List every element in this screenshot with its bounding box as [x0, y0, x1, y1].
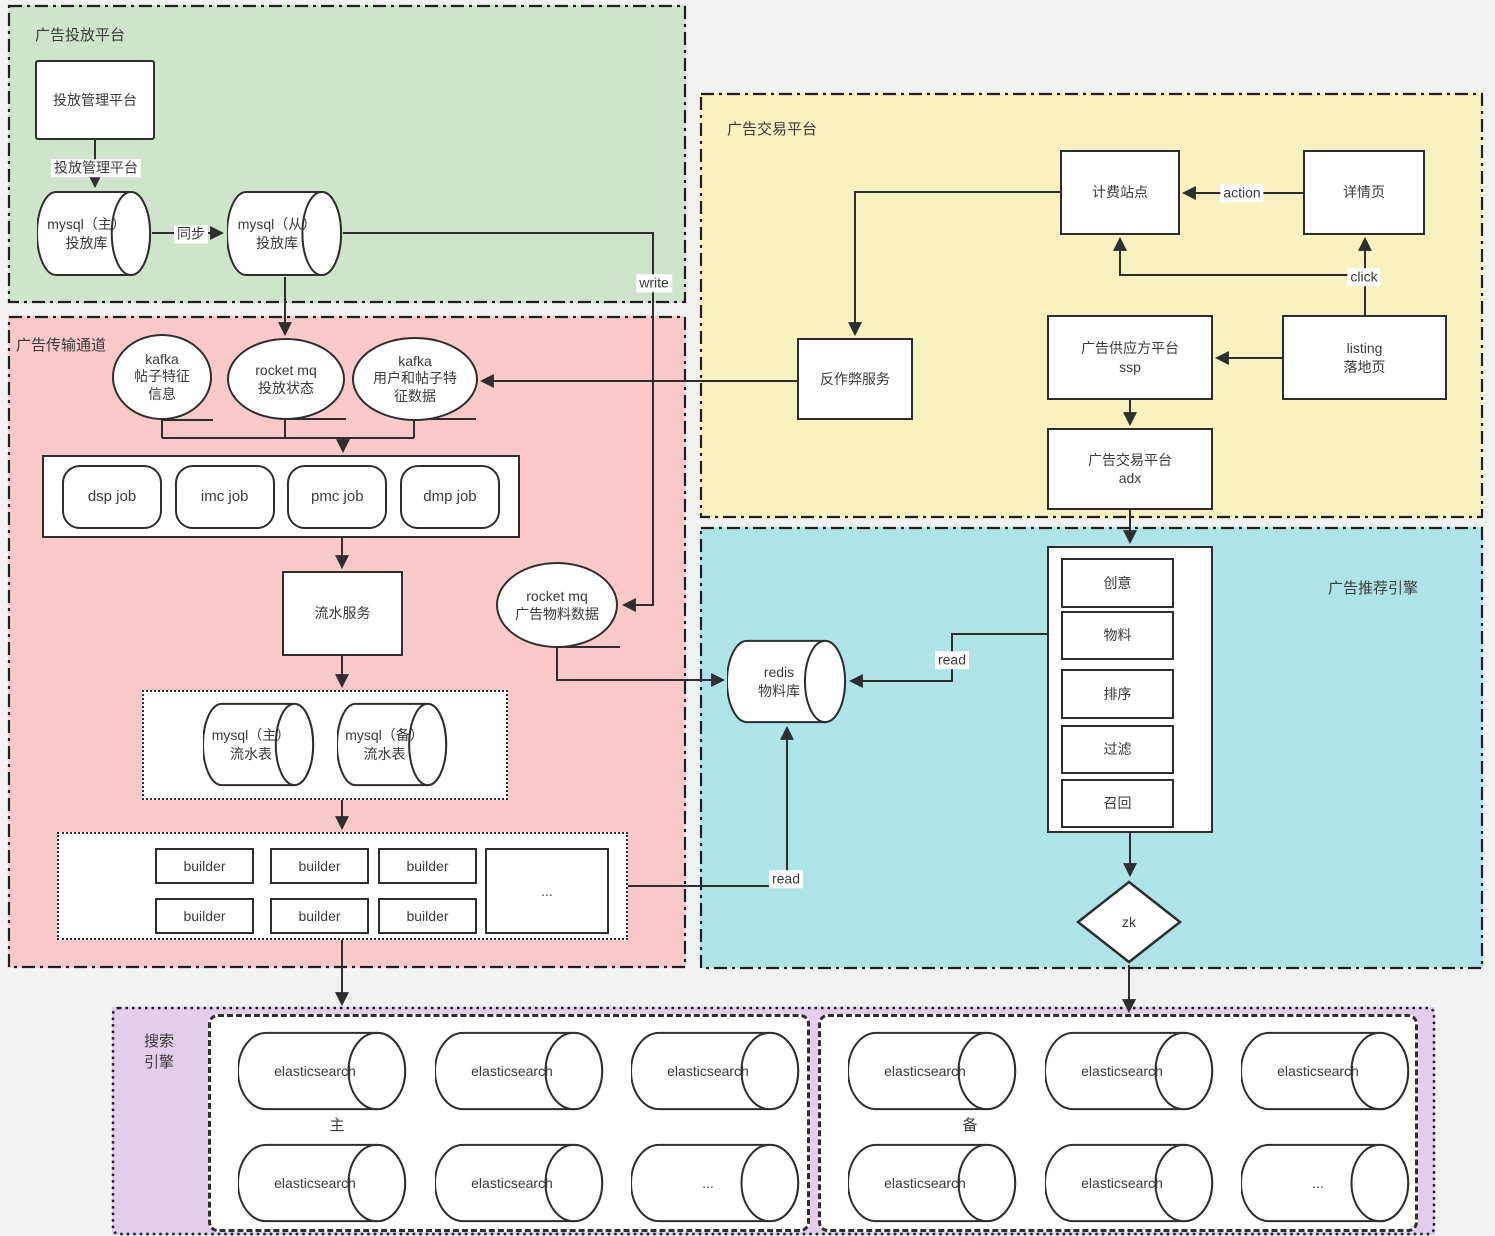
es-cylinder: elasticsearch	[435, 1031, 605, 1111]
job-dmp: dmp job	[400, 465, 500, 529]
builder-grid: builder builder builder builder builder …	[57, 832, 628, 940]
cylinder-mysql-slave-ads: mysql（从） 投放库	[227, 190, 343, 277]
ellipse-rocketmq-status: rocket mq 投放状态	[227, 338, 345, 420]
cylinder-mysql-master-flow: mysql（主） 流水表	[203, 702, 315, 787]
stack-item-label: 过滤	[1104, 740, 1132, 758]
es-more-cylinder: ...	[631, 1143, 801, 1223]
cylinder-redis-material-label: redis 物料库	[758, 663, 816, 699]
edge-label-mgmt: 投放管理平台	[51, 159, 141, 177]
stack-item-creative: 创意	[1061, 558, 1174, 608]
es-cylinder: elasticsearch	[238, 1143, 408, 1223]
stack-item-recall: 召回	[1061, 779, 1174, 828]
cylinder-redis-material: redis 物料库	[727, 639, 847, 724]
es-label: elasticsearch	[667, 1062, 765, 1080]
stack-item-filter: 过滤	[1061, 725, 1174, 774]
region-label-ad-delivery: 广告投放平台	[35, 24, 125, 45]
node-listing-page-label: listing 落地页	[1344, 339, 1386, 375]
builder-more-label: ...	[541, 882, 553, 900]
node-anti-fraud-label: 反作弊服务	[820, 370, 890, 388]
es-cylinder: elasticsearch	[1045, 1143, 1215, 1223]
es-label: elasticsearch	[471, 1062, 569, 1080]
stack-item-label: 召回	[1104, 794, 1132, 812]
ellipse-rocketmq-status-label: rocket mq 投放状态	[255, 361, 316, 397]
node-adx-label: 广告交易平台 adx	[1088, 451, 1172, 487]
region-label-search-engine: 搜索 引擎	[130, 1030, 188, 1072]
cylinder-mysql-master-ads: mysql（主） 投放库	[37, 190, 152, 277]
edge-label-write: write	[636, 274, 672, 292]
node-anti-fraud: 反作弊服务	[797, 338, 913, 420]
edge-label-sync: 同步	[174, 225, 208, 243]
cylinder-mysql-backup-flow-label: mysql（备） 流水表	[345, 726, 440, 762]
ellipse-kafka-user-post-feature-label: kafka 用户和帖子特 征数据	[373, 353, 457, 406]
es-label: elasticsearch	[1081, 1062, 1179, 1080]
node-listing-page: listing 落地页	[1282, 315, 1447, 400]
builder-label: builder	[183, 907, 225, 925]
region-label-ad-exchange: 广告交易平台	[727, 118, 817, 139]
es-label: elasticsearch	[884, 1062, 982, 1080]
builder-box: builder	[270, 848, 369, 884]
stack-item-rank: 排序	[1061, 669, 1174, 719]
builder-label: builder	[183, 857, 225, 875]
builder-label: builder	[406, 907, 448, 925]
builder-box: builder	[378, 898, 477, 934]
node-flow-service-label: 流水服务	[315, 604, 371, 622]
ellipse-rocketmq-ad-material-label: rocket mq 广告物料数据	[515, 587, 599, 623]
node-mgmt-platform: 投放管理平台	[35, 60, 155, 140]
node-billing-site: 计费站点	[1060, 150, 1180, 235]
builder-box: builder	[378, 848, 477, 884]
edge-label-read-stack: read	[935, 651, 969, 669]
stack-item-label: 排序	[1104, 685, 1132, 703]
region-label-ad-recommend: 广告推荐引擎	[1328, 577, 1418, 598]
es-cluster-main: elasticsearch elasticsearch elasticsearc…	[208, 1014, 810, 1232]
es-more-label: ...	[702, 1174, 730, 1192]
ellipse-kafka-post-feature-label: kafka 帖子特征 信息	[134, 351, 190, 404]
region-label-ad-channel: 广告传输通道	[16, 334, 106, 355]
cylinder-mysql-master-ads-label: mysql（主） 投放库	[47, 215, 142, 251]
es-cylinder: elasticsearch	[1241, 1031, 1411, 1111]
job-imc: imc job	[175, 465, 275, 529]
builder-more-box: ...	[485, 848, 609, 934]
cylinder-mysql-master-flow-label: mysql（主） 流水表	[212, 726, 307, 762]
builder-label: builder	[298, 857, 340, 875]
ellipse-rocketmq-ad-material: rocket mq 广告物料数据	[496, 562, 618, 648]
builder-label: builder	[406, 857, 448, 875]
container-flow-tables	[142, 690, 508, 800]
node-billing-site-label: 计费站点	[1092, 183, 1148, 201]
stack-item-material: 物料	[1061, 611, 1174, 660]
cylinder-mysql-slave-ads-label: mysql（从） 投放库	[238, 215, 333, 251]
es-cylinder: elasticsearch	[435, 1143, 605, 1223]
es-cylinder: elasticsearch	[848, 1143, 1018, 1223]
ellipse-kafka-post-feature: kafka 帖子特征 信息	[112, 334, 212, 420]
es-label: elasticsearch	[1081, 1174, 1179, 1192]
node-detail-page: 详情页	[1303, 150, 1425, 235]
stack-item-label: 创意	[1104, 574, 1132, 592]
node-flow-service: 流水服务	[282, 571, 403, 656]
zk-label: zk	[1122, 913, 1136, 931]
node-detail-page-label: 详情页	[1343, 183, 1385, 201]
es-backup-badge: 备	[940, 1114, 1000, 1135]
es-label: elasticsearch	[274, 1174, 372, 1192]
zk-diamond: zk	[1075, 879, 1183, 965]
recommend-stack: 创意 物料 排序 过滤 召回	[1047, 546, 1213, 833]
builder-box: builder	[155, 898, 254, 934]
builder-label: builder	[298, 907, 340, 925]
cylinder-mysql-backup-flow: mysql（备） 流水表	[337, 702, 448, 787]
es-more-label: ...	[1312, 1174, 1340, 1192]
job-dmp-label: dmp job	[423, 487, 476, 507]
edge-label-click: click	[1347, 268, 1380, 286]
es-label: elasticsearch	[471, 1174, 569, 1192]
node-adx: 广告交易平台 adx	[1047, 428, 1213, 510]
job-dsp-label: dsp job	[88, 487, 136, 507]
edge-label-read-builder: read	[769, 870, 803, 888]
node-mgmt-platform-label: 投放管理平台	[53, 91, 137, 109]
job-dsp: dsp job	[62, 465, 162, 529]
job-pmc-label: pmc job	[311, 487, 364, 507]
job-pmc: pmc job	[287, 465, 387, 529]
builder-box: builder	[155, 848, 254, 884]
node-ssp-label: 广告供应方平台 ssp	[1081, 339, 1179, 375]
job-imc-label: imc job	[201, 487, 249, 507]
es-label: elasticsearch	[274, 1062, 372, 1080]
ellipse-kafka-user-post-feature: kafka 用户和帖子特 征数据	[352, 337, 478, 421]
jobs-row: dsp job imc job pmc job dmp job	[42, 455, 520, 538]
es-cylinder: elasticsearch	[848, 1031, 1018, 1111]
es-cylinder: elasticsearch	[238, 1031, 408, 1111]
es-more-cylinder: ...	[1241, 1143, 1411, 1223]
es-cluster-backup: elasticsearch elasticsearch elasticsearc…	[818, 1014, 1418, 1232]
stack-item-label: 物料	[1104, 626, 1132, 644]
es-cylinder: elasticsearch	[631, 1031, 801, 1111]
es-label: elasticsearch	[1277, 1062, 1375, 1080]
es-cylinder: elasticsearch	[1045, 1031, 1215, 1111]
es-label: elasticsearch	[884, 1174, 982, 1192]
architecture-diagram: 广告投放平台 广告传输通道 广告交易平台 广告推荐引擎 搜索 引擎 dsp jo…	[0, 0, 1495, 1236]
node-ssp: 广告供应方平台 ssp	[1047, 315, 1213, 400]
es-main-badge: 主	[307, 1114, 367, 1135]
edge-label-action: action	[1220, 184, 1263, 202]
builder-box: builder	[270, 898, 369, 934]
